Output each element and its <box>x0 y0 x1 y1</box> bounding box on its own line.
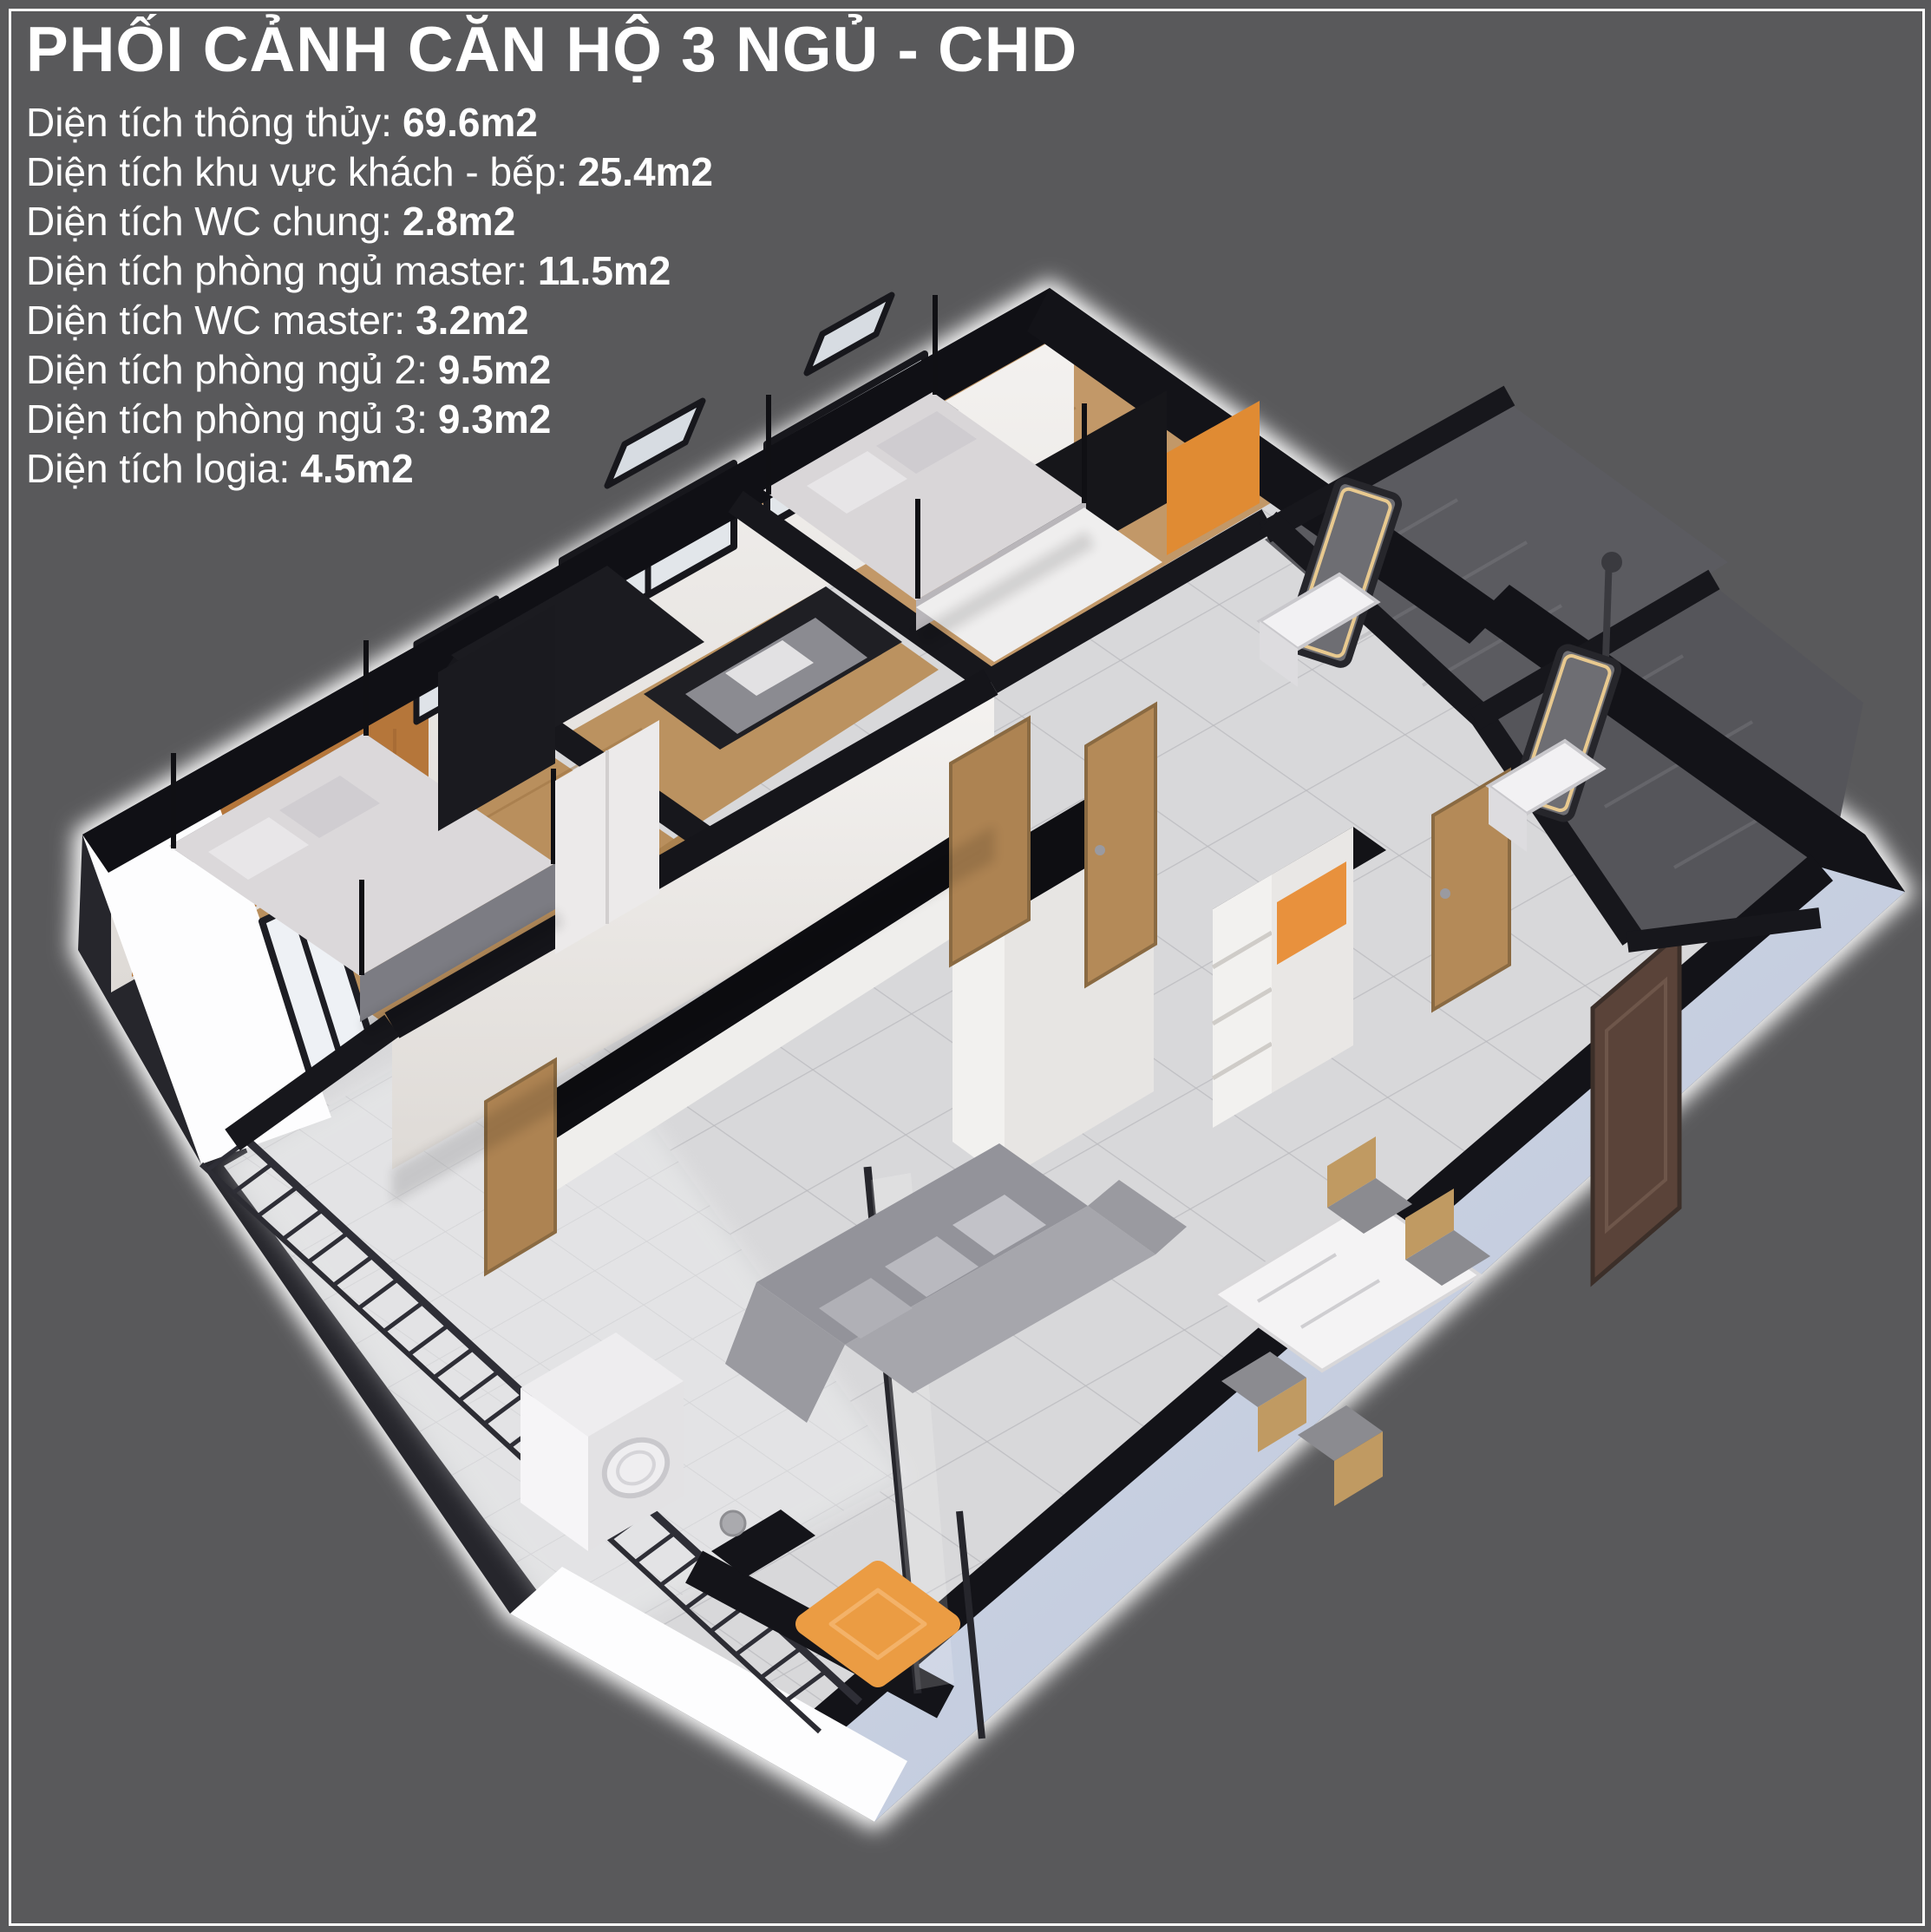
spec-khach-bep: Diện tích khu vực khách - bếp:25.4m2 <box>26 147 1077 197</box>
spec-ngu-3: Diện tích phòng ngủ 3:9.3m2 <box>26 395 1077 444</box>
door-handle <box>1440 888 1450 899</box>
poster-canvas: PHỐI CẢNH CĂN HỘ 3 NGỦ - CHD Diện tích t… <box>0 0 1931 1932</box>
area-specs: Diện tích thông thủy:69.6m2 Diện tích kh… <box>26 98 1077 494</box>
spec-wc-master: Diện tích WC master:3.2m2 <box>26 296 1077 345</box>
shower-head <box>1601 552 1622 573</box>
master-door <box>1086 704 1155 986</box>
page-title: PHỐI CẢNH CĂN HỘ 3 NGỦ - CHD <box>26 14 1077 86</box>
spec-ngu-2: Diện tích phòng ngủ 2:9.5m2 <box>26 345 1077 395</box>
spec-wc-chung: Diện tích WC chung:2.8m2 <box>26 197 1077 246</box>
spec-thong-thuy: Diện tích thông thủy:69.6m2 <box>26 98 1077 147</box>
legend: PHỐI CẢNH CĂN HỘ 3 NGỦ - CHD Diện tích t… <box>26 14 1077 494</box>
spec-logia: Diện tích logia:4.5m2 <box>26 444 1077 494</box>
shelf-open-column <box>1213 874 1272 1128</box>
door-handle <box>1095 845 1105 855</box>
floor-drain <box>721 1511 745 1536</box>
spec-ngu-master: Diện tích phòng ngủ master:11.5m2 <box>26 246 1077 296</box>
